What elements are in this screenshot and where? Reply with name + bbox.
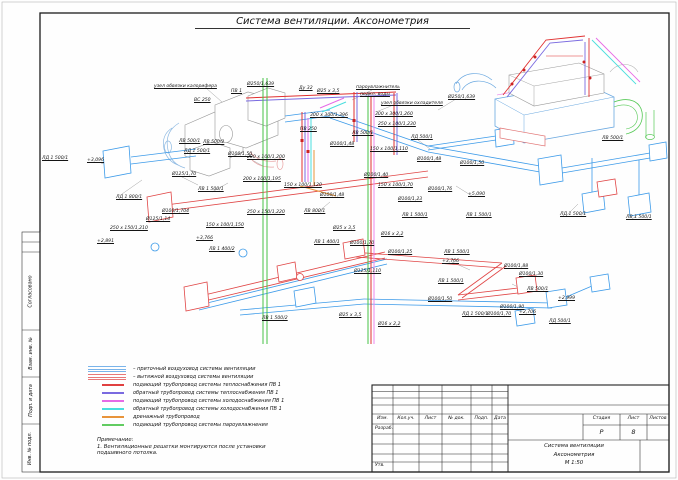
duct-label: Ø100/1,70	[350, 241, 374, 246]
legend-item: подающий трубопровод системы теплоснабже…	[88, 381, 378, 389]
duct-label: Ду 32	[299, 86, 313, 91]
duct-label: ЛВ 500/1	[602, 136, 623, 141]
duct-label: 250 х 100/1,230	[378, 122, 416, 127]
tb-col-podp: Подп.	[471, 416, 492, 421]
legend-item: – приточный воздуховод системы вентиляци…	[88, 365, 378, 373]
duct-label: Ø25 х 3,5	[317, 89, 339, 94]
duct-label: 200 х 100/1,200	[247, 155, 285, 160]
stamp-soglasovano: Согласовано	[22, 252, 40, 330]
note-heading: Примечание:	[97, 437, 266, 444]
duct-label: 300 х 300/1,260	[375, 112, 413, 117]
duct-label: ЛД 500/1	[411, 135, 433, 140]
duct-label: Ø125/1,14	[146, 217, 170, 222]
legend-item: подающий трубопровод системы холодоснабж…	[88, 397, 378, 405]
duct-label: Ø100/1,30	[519, 272, 543, 277]
duct-label: Ø100/1,48	[320, 193, 344, 198]
duct-label: ЛД 1 500/1	[462, 312, 488, 317]
duct-label: ЛВ 1 500/1	[198, 187, 224, 192]
duct-label: ЛВ 500/1	[352, 131, 373, 136]
duct-label: ЛВ 800/1	[304, 209, 325, 214]
duct-label: +3,766	[196, 236, 213, 241]
duct-label: Ø100/1,76	[428, 187, 452, 192]
duct-label: Ø25 х 3,5	[333, 226, 355, 231]
duct-label: ЛД 1 500/1	[560, 212, 586, 217]
legend-label: обратный трубопровод системы теплоснабже…	[133, 390, 278, 396]
tb-doc-title: Система вентиляции Аксонометрия М 1:50	[510, 442, 638, 468]
duct-label: ЛД 1 500/1	[184, 149, 210, 154]
stamp-inv-podl: Инв. № подл.	[22, 424, 40, 472]
duct-label: ЛВ 1 500/1	[402, 213, 428, 218]
legend-item: дренажный трубопровод	[88, 413, 378, 421]
duct-label: ЛВ 1 400/2	[209, 247, 235, 252]
duct-label: Ø100/1,25	[388, 250, 412, 255]
stamp-podp-data: Подп. и дата	[22, 377, 40, 424]
duct-label: Ø125/1,110	[354, 269, 381, 274]
duct-label: ЛВ 500/1	[179, 139, 200, 144]
tb-col-data: Дата	[492, 416, 508, 421]
duct-label: +3,766	[442, 259, 459, 264]
tb-col-ndok: № док.	[442, 416, 471, 421]
duct-label: 300 х 300/1,396	[310, 113, 348, 118]
duct-label: +5,090	[468, 192, 485, 197]
duct-label: Ø100/1,50	[460, 161, 484, 166]
duct-label: 150 х 100/1,150	[206, 223, 244, 228]
duct-label: ЛВ 1 500/1	[438, 279, 464, 284]
tb-stage-value: Р	[583, 428, 620, 436]
duct-label: ЛВ 1 500/1	[626, 215, 652, 220]
duct-label: узел обвязки охладителя	[381, 101, 443, 106]
duct-label: ЛД 500/1	[549, 319, 571, 324]
duct-label: ПВ 1	[231, 89, 242, 94]
tb-stage-label: Стадия	[583, 416, 620, 421]
duct-label: +2,706	[519, 310, 536, 315]
legend-item: подающий трубопровод системы пароувлажне…	[88, 421, 378, 429]
duct-label: 250 х 150/1,210	[110, 226, 148, 231]
duct-label: Ø100/1,23	[398, 197, 422, 202]
tb-col-list: Лист	[419, 416, 442, 421]
legend-label: обратный трубопровод системы холодоснабж…	[133, 406, 282, 412]
tb-col-koluch: Кол.уч.	[393, 416, 419, 421]
duct-label: 150 х 100/1,120	[284, 183, 322, 188]
duct-label: ЛВ 500/2	[203, 140, 224, 145]
tb-sheet-value: 8	[620, 428, 647, 436]
duct-label: ВС 250	[194, 98, 211, 103]
tb-row-approved: Утв.	[375, 463, 415, 468]
tb-sheets-label: Листов	[647, 416, 669, 421]
legend-label: – вытяжной воздуховод системы вентиляции	[133, 374, 253, 380]
duct-label: Ø100/1,50	[428, 297, 452, 302]
duct-label: ЛВ 500/1	[527, 287, 548, 292]
duct-label: ЛВ 1 500/1	[444, 250, 470, 255]
tb-sheet-label: Лист	[620, 416, 647, 421]
legend-item: обратный трубопровод системы теплоснабже…	[88, 389, 378, 397]
duct-label: Ø16 х 2,2	[378, 322, 400, 327]
duct-label: +3,096	[87, 158, 104, 163]
duct-label: ЛД 1 500/1	[42, 156, 68, 161]
stamp-vzam-inv: Взам. инв. №	[22, 330, 40, 377]
duct-label: 150 х 100/1,70	[378, 183, 413, 188]
legend-label: подающий трубопровод системы холодоснабж…	[133, 398, 284, 404]
duct-label: подкл. воды	[360, 92, 390, 97]
duct-label: Ø100/1,704	[162, 209, 189, 214]
duct-label: ПВ 250	[300, 127, 317, 132]
legend-label: – приточный воздуховод системы вентиляци…	[133, 366, 256, 372]
legend-label: подающий трубопровод системы пароувлажне…	[133, 422, 268, 428]
duct-label: ЛВ 1 500/1	[466, 213, 492, 218]
legend-label: подающий трубопровод системы теплоснабже…	[133, 382, 281, 388]
duct-label: пароувлажнитель	[356, 85, 400, 90]
duct-label: Ø25 х 3,5	[339, 313, 361, 318]
legend: – приточный воздуховод системы вентиляци…	[88, 365, 378, 429]
duct-label: 250 х 150/1,220	[247, 210, 285, 215]
note-line: подшивного потолка.	[97, 450, 266, 457]
duct-label: Ø100/1,48	[330, 142, 354, 147]
duct-label: 150 х 100/1,110	[370, 147, 408, 152]
note-line: 1. Вентиляционные решетки монтируются по…	[97, 444, 266, 451]
duct-label: 200 х 100/1,195	[243, 177, 281, 182]
duct-label: Ø250/1,639	[448, 95, 475, 100]
duct-label: Ø16 х 2,2	[381, 232, 403, 237]
duct-label: узел обвязки калорифера	[154, 84, 217, 89]
duct-label: Ø125/1,70	[172, 172, 196, 177]
legend-items: – приточный воздуховод системы вентиляци…	[88, 365, 378, 429]
duct-label: ЛВ 1 500/2	[262, 316, 288, 321]
duct-label: Ø100/1,70	[487, 312, 511, 317]
duct-label: ЛВ 1 400/1	[314, 240, 340, 245]
note: Примечание: 1. Вентиляционные решетки мо…	[97, 437, 266, 457]
tb-row-developed: Разраб.	[375, 426, 415, 431]
legend-label: дренажный трубопровод	[133, 414, 200, 420]
drawing-sheet: Система вентиляции. Аксонометрия узел об…	[0, 0, 678, 480]
duct-label: +2,891	[97, 239, 114, 244]
legend-item: – вытяжной воздуховод системы вентиляции	[88, 373, 378, 381]
duct-label: Ø100/1,48	[417, 157, 441, 162]
duct-label: +2,999	[558, 296, 575, 301]
legend-item: обратный трубопровод системы холодоснабж…	[88, 405, 378, 413]
duct-label: Ø250/1,639	[247, 82, 274, 87]
duct-label: Ø100/1,40	[364, 173, 388, 178]
duct-label: ЛД 1 800/1	[116, 195, 142, 200]
tb-col-izm: Изм.	[372, 416, 393, 421]
duct-label: Ø100/1,88	[504, 264, 528, 269]
